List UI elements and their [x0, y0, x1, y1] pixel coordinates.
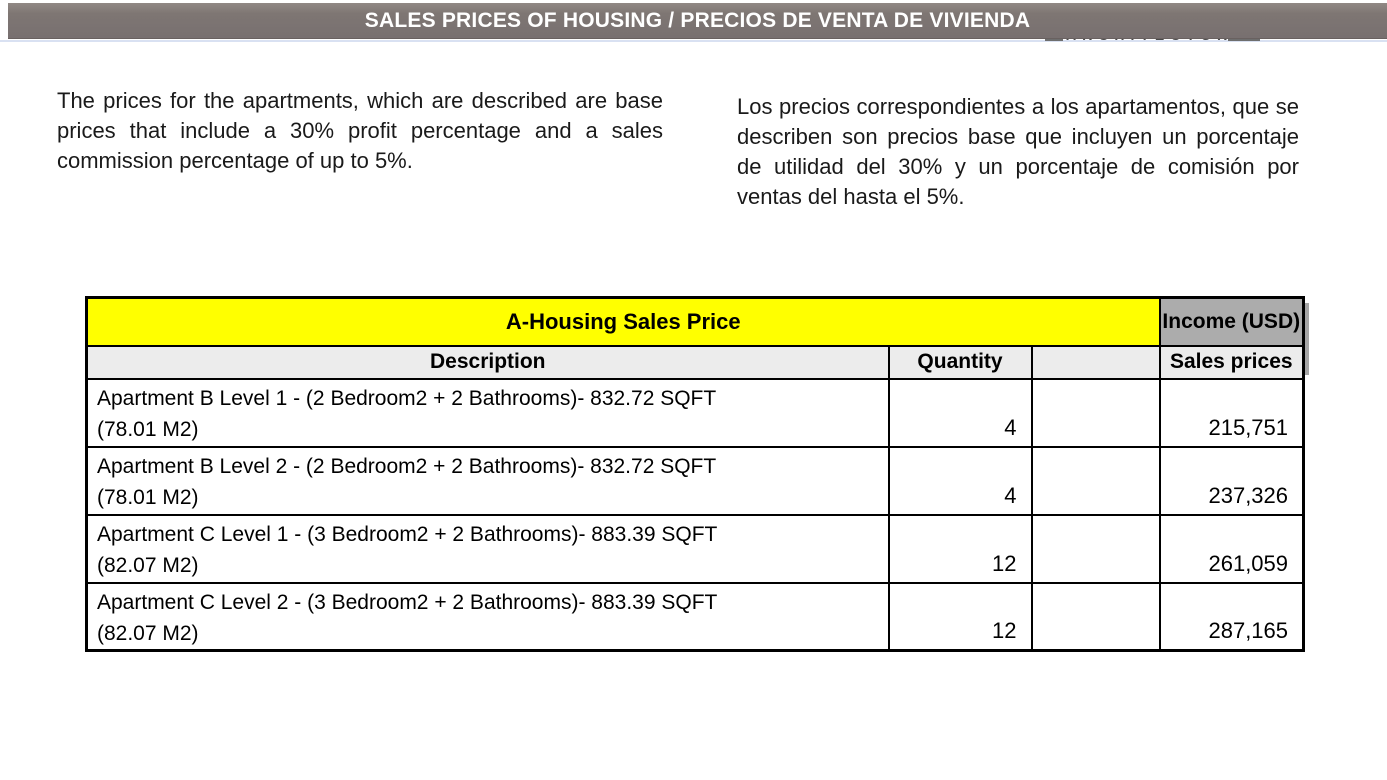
quantity-cell: 4: [889, 447, 1032, 515]
description-line2: (78.01 M2): [97, 486, 199, 509]
page-title: SALES PRICES OF HOUSING / PRECIOS DE VEN…: [365, 9, 1030, 33]
table-title-row: A-Housing Sales Price Income (USD): [87, 298, 1304, 346]
description-line2: (82.07 M2): [97, 554, 199, 577]
col-header-sales-prices: Sales prices: [1160, 346, 1304, 379]
spacer-cell: [1032, 515, 1160, 583]
column-header-row: Description Quantity Sales prices: [87, 346, 1304, 379]
quantity-cell: 12: [889, 515, 1032, 583]
description-line1: Apartment C Level 1 - (3 Bedroom2 + 2 Ba…: [97, 523, 717, 546]
intro-paragraph-english: The prices for the apartments, which are…: [57, 86, 663, 176]
description-line2: (82.07 M2): [97, 622, 199, 645]
sales-price-cell: 237,326: [1160, 447, 1304, 515]
logo-rule-left: [1045, 39, 1063, 41]
sales-price-table: A-Housing Sales Price Income (USD) Descr…: [85, 296, 1305, 652]
description-cell: Apartment C Level 2 - (3 Bedroom2 + 2 Ba…: [87, 583, 889, 651]
description-cell: Apartment C Level 1 - (3 Bedroom2 + 2 Ba…: [87, 515, 889, 583]
sales-price-cell: 215,751: [1160, 379, 1304, 447]
title-bar: SALES PRICES OF HOUSING / PRECIOS DE VEN…: [8, 3, 1387, 39]
income-header-cell: Income (USD): [1160, 298, 1304, 346]
intro-paragraph-spanish: Los precios correspondientes a los apart…: [737, 92, 1299, 212]
quantity-cell: 12: [889, 583, 1032, 651]
sales-price-cell: 261,059: [1160, 515, 1304, 583]
col-header-quantity: Quantity: [889, 346, 1032, 379]
description-line1: Apartment C Level 2 - (3 Bedroom2 + 2 Ba…: [97, 591, 717, 614]
sales-price-cell: 287,165: [1160, 583, 1304, 651]
spacer-cell: [1032, 447, 1160, 515]
description-line2: (78.01 M2): [97, 418, 199, 441]
table-row: Apartment C Level 1 - (3 Bedroom2 + 2 Ba…: [87, 515, 1304, 583]
description-line1: Apartment B Level 2 - (2 Bedroom2 + 2 Ba…: [97, 455, 716, 478]
table-title-cell: A-Housing Sales Price: [87, 298, 1160, 346]
logo-rule-right: [1228, 39, 1260, 41]
col-header-spacer: [1032, 346, 1160, 379]
description-cell: Apartment B Level 1 - (2 Bedroom2 + 2 Ba…: [87, 379, 889, 447]
quantity-cell: 4: [889, 379, 1032, 447]
description-cell: Apartment B Level 2 - (2 Bedroom2 + 2 Ba…: [87, 447, 889, 515]
spacer-cell: [1032, 583, 1160, 651]
slide: ARCHITECTURE SALES PRICES OF HOUSING / P…: [0, 0, 1387, 780]
spacer-cell: [1032, 379, 1160, 447]
col-header-description: Description: [87, 346, 889, 379]
table-row: Apartment B Level 2 - (2 Bedroom2 + 2 Ba…: [87, 447, 1304, 515]
table-row: Apartment B Level 1 - (2 Bedroom2 + 2 Ba…: [87, 379, 1304, 447]
table-row: Apartment C Level 2 - (3 Bedroom2 + 2 Ba…: [87, 583, 1304, 651]
description-line1: Apartment B Level 1 - (2 Bedroom2 + 2 Ba…: [97, 387, 716, 410]
